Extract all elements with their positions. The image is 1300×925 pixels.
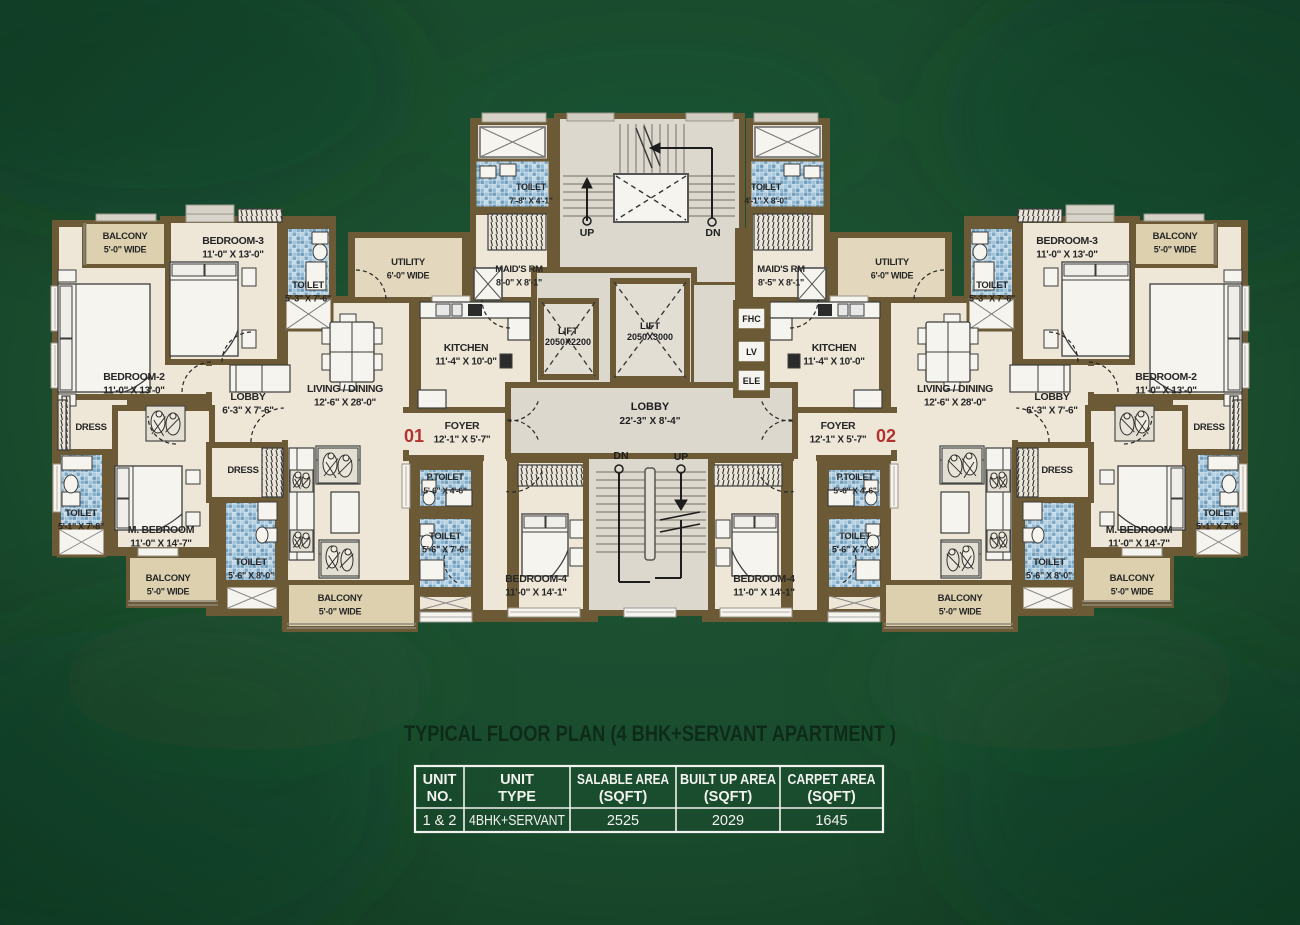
svg-text:6'-0" WIDE: 6'-0" WIDE (387, 271, 430, 281)
svg-text:2050X2200: 2050X2200 (545, 337, 591, 347)
svg-text:DRESS: DRESS (1041, 465, 1072, 476)
svg-text:5'-6" X 4'-6": 5'-6" X 4'-6" (423, 486, 466, 496)
svg-text:DRESS: DRESS (75, 422, 106, 433)
svg-text:BUILT UP AREA: BUILT UP AREA (680, 772, 776, 788)
svg-text:5'-0" WIDE: 5'-0" WIDE (939, 607, 982, 617)
svg-text:11'-0" X 13'-0": 11'-0" X 13'-0" (1135, 386, 1197, 397)
svg-text:BALCONY: BALCONY (1110, 573, 1156, 584)
svg-text:LOBBY: LOBBY (631, 401, 670, 413)
svg-text:5'-1" X 7'-8": 5'-1" X 7'-8" (1196, 522, 1242, 532)
svg-text:12'-6" X 28'-0": 12'-6" X 28'-0" (314, 398, 377, 409)
svg-text:22'-3" X 8'-4": 22'-3" X 8'-4" (620, 416, 681, 427)
svg-text:11'-0" X 14'-1": 11'-0" X 14'-1" (505, 588, 567, 599)
svg-text:TOILET: TOILET (65, 508, 97, 519)
svg-text:5'-6" X 8'-0": 5'-6" X 8'-0" (228, 571, 274, 581)
svg-text:BALCONY: BALCONY (318, 593, 364, 604)
svg-text:5'-3" X 7'-6": 5'-3" X 7'-6" (285, 294, 331, 304)
svg-text:FOYER: FOYER (445, 420, 480, 432)
svg-text:LIFT: LIFT (558, 326, 578, 337)
svg-text:8'-5" X 8'-1": 8'-5" X 8'-1" (758, 278, 804, 288)
svg-text:8'-0" X 8'-1": 8'-0" X 8'-1" (496, 278, 542, 288)
svg-text:UNIT: UNIT (423, 772, 457, 788)
svg-text:5'-3" X 7'-6": 5'-3" X 7'-6" (969, 294, 1015, 304)
svg-text:11'-0" X 14'-1": 11'-0" X 14'-1" (733, 588, 795, 599)
svg-text:(SQFT): (SQFT) (807, 789, 855, 805)
svg-text:SALABLE AREA: SALABLE AREA (577, 772, 669, 788)
svg-text:LIVING / DINING: LIVING / DINING (307, 383, 383, 395)
svg-text:11'-4" X 10'-0": 11'-4" X 10'-0" (803, 357, 865, 368)
svg-text:TYPICAL FLOOR PLAN (4 BHK+SERV: TYPICAL FLOOR PLAN (4 BHK+SERVANT APARTM… (404, 721, 896, 746)
svg-text:1645: 1645 (815, 813, 847, 829)
svg-text:2525: 2525 (607, 813, 639, 829)
svg-text:DN: DN (613, 450, 628, 462)
svg-text:UNIT: UNIT (500, 772, 534, 788)
svg-text:BEDROOM-3: BEDROOM-3 (1036, 235, 1098, 247)
svg-text:TOILET: TOILET (839, 531, 871, 542)
svg-text:LOBBY: LOBBY (230, 391, 266, 403)
svg-text:5'-0" WIDE: 5'-0" WIDE (104, 245, 147, 255)
svg-text:M. BEDROOM: M. BEDROOM (128, 524, 195, 536)
svg-text:NO.: NO. (427, 789, 453, 805)
svg-text:ELE: ELE (743, 376, 761, 386)
svg-text:(SQFT): (SQFT) (599, 789, 647, 805)
svg-text:LIVING / DINING: LIVING / DINING (917, 383, 993, 395)
svg-text:5'-0" WIDE: 5'-0" WIDE (1111, 587, 1154, 597)
svg-text:LOBBY: LOBBY (1034, 391, 1070, 403)
svg-text:5'-6" X 7'-6": 5'-6" X 7'-6" (832, 545, 878, 555)
svg-text:02: 02 (876, 426, 896, 446)
svg-text:KITCHEN: KITCHEN (812, 342, 857, 354)
svg-text:4BHK+SERVANT: 4BHK+SERVANT (469, 813, 565, 829)
svg-text:4'-1" X 8'-0": 4'-1" X 8'-0" (744, 196, 787, 206)
svg-text:01: 01 (404, 426, 424, 446)
svg-text:TYPE: TYPE (498, 789, 536, 805)
svg-text:11'-4" X 10'-0": 11'-4" X 10'-0" (435, 357, 497, 368)
svg-text:6'-0" WIDE: 6'-0" WIDE (871, 271, 914, 281)
svg-text:5'-0" WIDE: 5'-0" WIDE (319, 607, 362, 617)
svg-text:BALCONY: BALCONY (1153, 231, 1199, 242)
svg-text:UP: UP (580, 227, 595, 239)
svg-text:BEDROOM-3: BEDROOM-3 (202, 235, 264, 247)
svg-text:6'-3" X 7'-6": 6'-3" X 7'-6" (1026, 406, 1078, 417)
svg-text:LIFT: LIFT (640, 321, 660, 332)
svg-text:2029: 2029 (712, 813, 744, 829)
svg-text:M. BEDROOM: M. BEDROOM (1106, 524, 1173, 536)
svg-text:(SQFT): (SQFT) (704, 789, 752, 805)
svg-text:11'-0" X 14'-7": 11'-0" X 14'-7" (130, 539, 192, 550)
svg-text:5'-1" X 7'-8": 5'-1" X 7'-8" (58, 522, 104, 532)
svg-text:P.TOILET: P.TOILET (837, 472, 875, 482)
svg-text:12'-1" X 5'-7": 12'-1" X 5'-7" (434, 435, 491, 446)
svg-text:UTILITY: UTILITY (875, 257, 910, 268)
svg-text:CARPET AREA: CARPET AREA (788, 772, 876, 788)
svg-text:TOILET: TOILET (429, 531, 461, 542)
svg-text:DRESS: DRESS (227, 465, 258, 476)
svg-text:BEDROOM-2: BEDROOM-2 (1135, 371, 1197, 383)
svg-text:5'-6" X 7'-6": 5'-6" X 7'-6" (422, 545, 468, 555)
svg-text:TOILET: TOILET (292, 280, 324, 291)
svg-text:BEDROOM-4: BEDROOM-4 (733, 573, 795, 585)
svg-text:P.TOILET: P.TOILET (427, 472, 465, 482)
svg-text:11'-0" X 13'-0": 11'-0" X 13'-0" (1036, 250, 1098, 261)
svg-text:BEDROOM-4: BEDROOM-4 (505, 573, 567, 585)
svg-text:1 & 2: 1 & 2 (423, 813, 457, 829)
svg-text:11'-0" X 13'-0": 11'-0" X 13'-0" (202, 250, 264, 261)
svg-text:TOILET: TOILET (1033, 557, 1065, 568)
svg-text:KITCHEN: KITCHEN (444, 342, 489, 354)
svg-text:5'-0" WIDE: 5'-0" WIDE (1154, 245, 1197, 255)
svg-text:6'-3" X 7'-6": 6'-3" X 7'-6" (222, 406, 274, 417)
svg-text:FOYER: FOYER (821, 420, 856, 432)
svg-text:12'-6" X 28'-0": 12'-6" X 28'-0" (924, 398, 987, 409)
svg-text:2050X3000: 2050X3000 (627, 332, 673, 342)
svg-text:5'-6" X 8'-0": 5'-6" X 8'-0" (1026, 571, 1072, 581)
svg-text:UTILITY: UTILITY (391, 257, 426, 268)
svg-text:UP: UP (674, 451, 689, 463)
svg-text:11'-0" X 14'-7": 11'-0" X 14'-7" (1108, 539, 1170, 550)
svg-text:11'-0" X 13'-0": 11'-0" X 13'-0" (103, 386, 165, 397)
svg-text:BEDROOM-2: BEDROOM-2 (103, 371, 165, 383)
svg-text:LV: LV (746, 347, 757, 357)
svg-text:5'-0" WIDE: 5'-0" WIDE (147, 587, 190, 597)
svg-text:BALCONY: BALCONY (103, 231, 149, 242)
svg-text:BALCONY: BALCONY (938, 593, 984, 604)
svg-text:12'-1" X 5'-7": 12'-1" X 5'-7" (810, 435, 867, 446)
svg-text:TOILET: TOILET (516, 182, 547, 192)
svg-text:TOILET: TOILET (1203, 508, 1235, 519)
svg-text:MAID'S RM: MAID'S RM (757, 264, 805, 275)
svg-text:MAID'S RM: MAID'S RM (495, 264, 543, 275)
svg-text:TOILET: TOILET (976, 280, 1008, 291)
svg-text:DN: DN (705, 227, 720, 239)
svg-text:DRESS: DRESS (1193, 422, 1224, 433)
svg-text:FHC: FHC (742, 314, 761, 324)
svg-text:5'-6" X 4'-6": 5'-6" X 4'-6" (833, 486, 876, 496)
svg-text:TOILET: TOILET (235, 557, 267, 568)
svg-text:TOILET: TOILET (751, 182, 782, 192)
svg-text:BALCONY: BALCONY (146, 573, 192, 584)
svg-text:7'-8" X 4'-1": 7'-8" X 4'-1" (509, 196, 552, 206)
